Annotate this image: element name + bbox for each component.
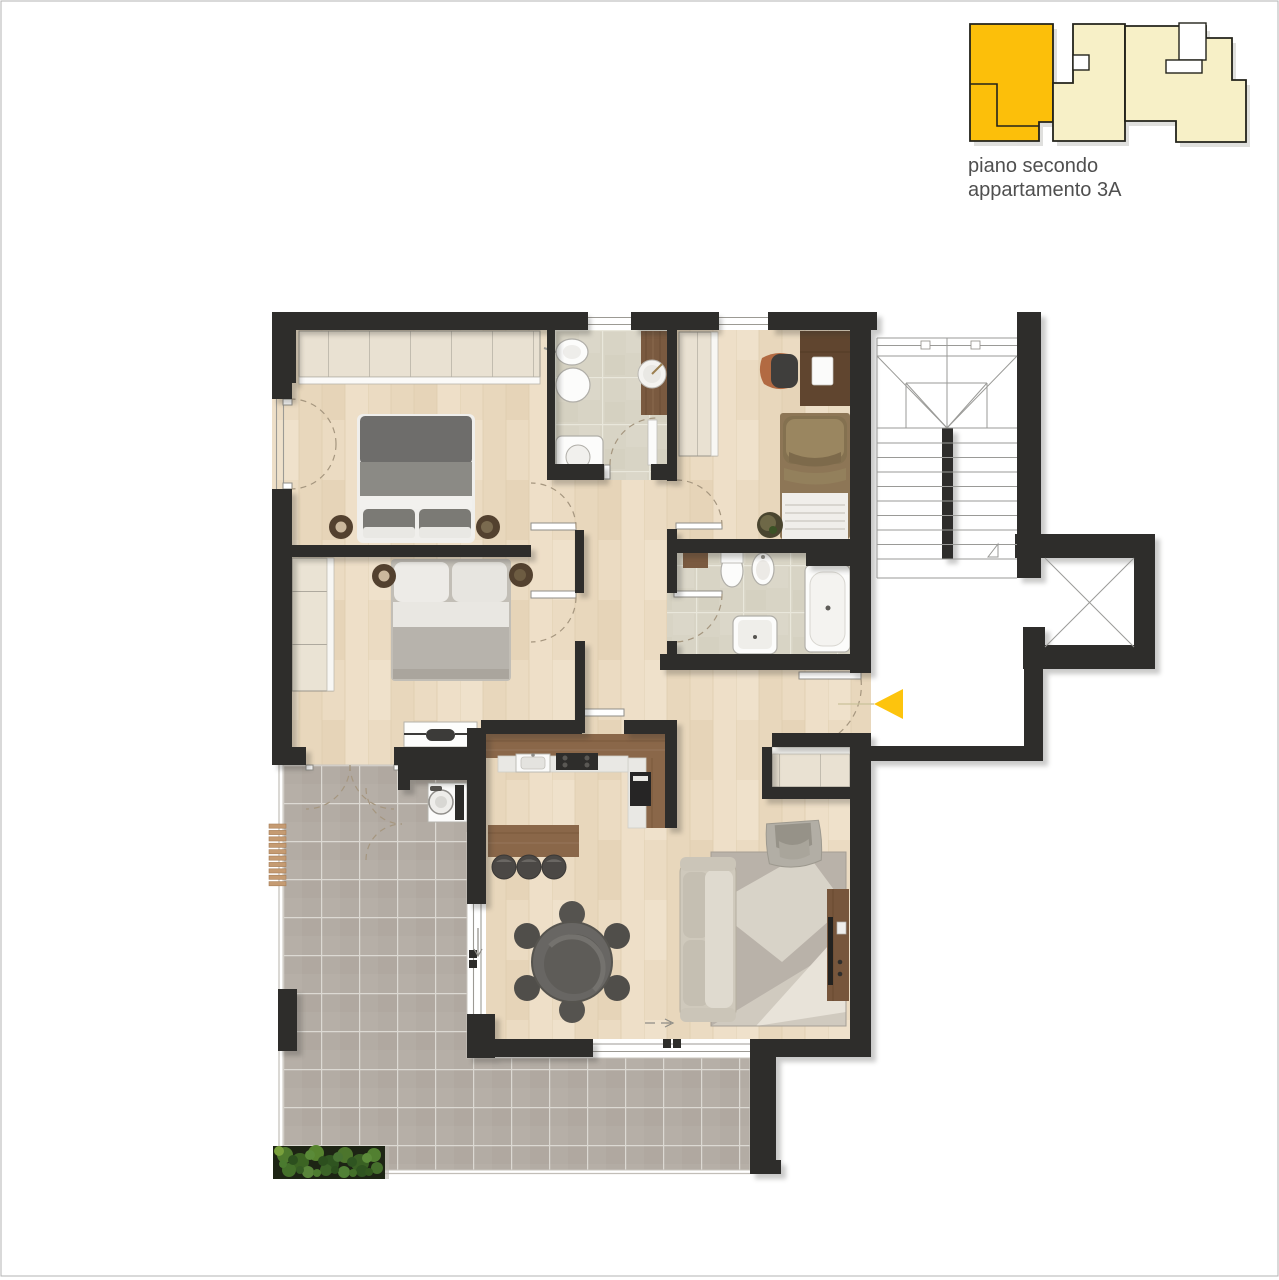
svg-text:piano secondo: piano secondo (968, 155, 1098, 177)
svg-text:appartamento 3A: appartamento 3A (968, 179, 1122, 201)
